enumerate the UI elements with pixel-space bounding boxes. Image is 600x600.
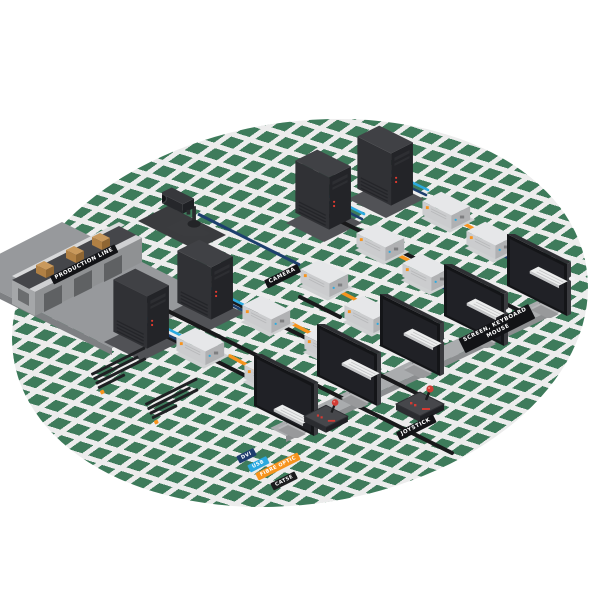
- tower-pc: [292, 146, 356, 234]
- keyboard-mouse: [340, 356, 390, 382]
- tower-pc: [110, 265, 174, 353]
- tower-pc: [174, 236, 238, 324]
- joystick: [300, 398, 352, 440]
- keyboard-mouse: [402, 326, 452, 352]
- tower-pc: [354, 122, 418, 210]
- kvm-transmitter-unit: [240, 294, 296, 340]
- keyboard-mouse: [528, 264, 578, 290]
- kvm-transmitter-unit: [174, 326, 230, 372]
- cctv-camera: [162, 180, 228, 236]
- isometric-av-network-diagram: PRODUCTION LINE CAMERA SCREEN, KEYBOARD …: [0, 0, 600, 600]
